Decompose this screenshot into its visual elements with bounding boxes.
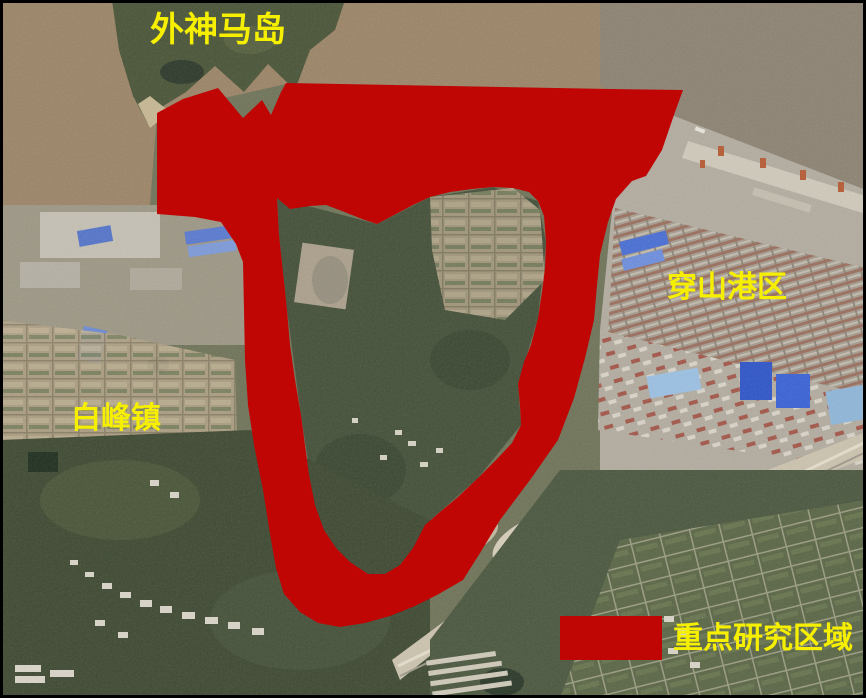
satellite-map-figure: 外神马岛 穿山港区 白峰镇 重点研究区域 — [0, 0, 866, 698]
legend-swatch — [560, 616, 662, 660]
label-port: 穿山港区 — [667, 270, 787, 305]
satellite-map-canvas: 外神马岛 穿山港区 白峰镇 重点研究区域 — [0, 0, 866, 698]
label-town: 白峰镇 — [71, 401, 161, 436]
label-island: 外神马岛 — [150, 10, 286, 50]
legend: 重点研究区域 — [560, 616, 853, 660]
legend-label: 重点研究区域 — [673, 621, 853, 656]
